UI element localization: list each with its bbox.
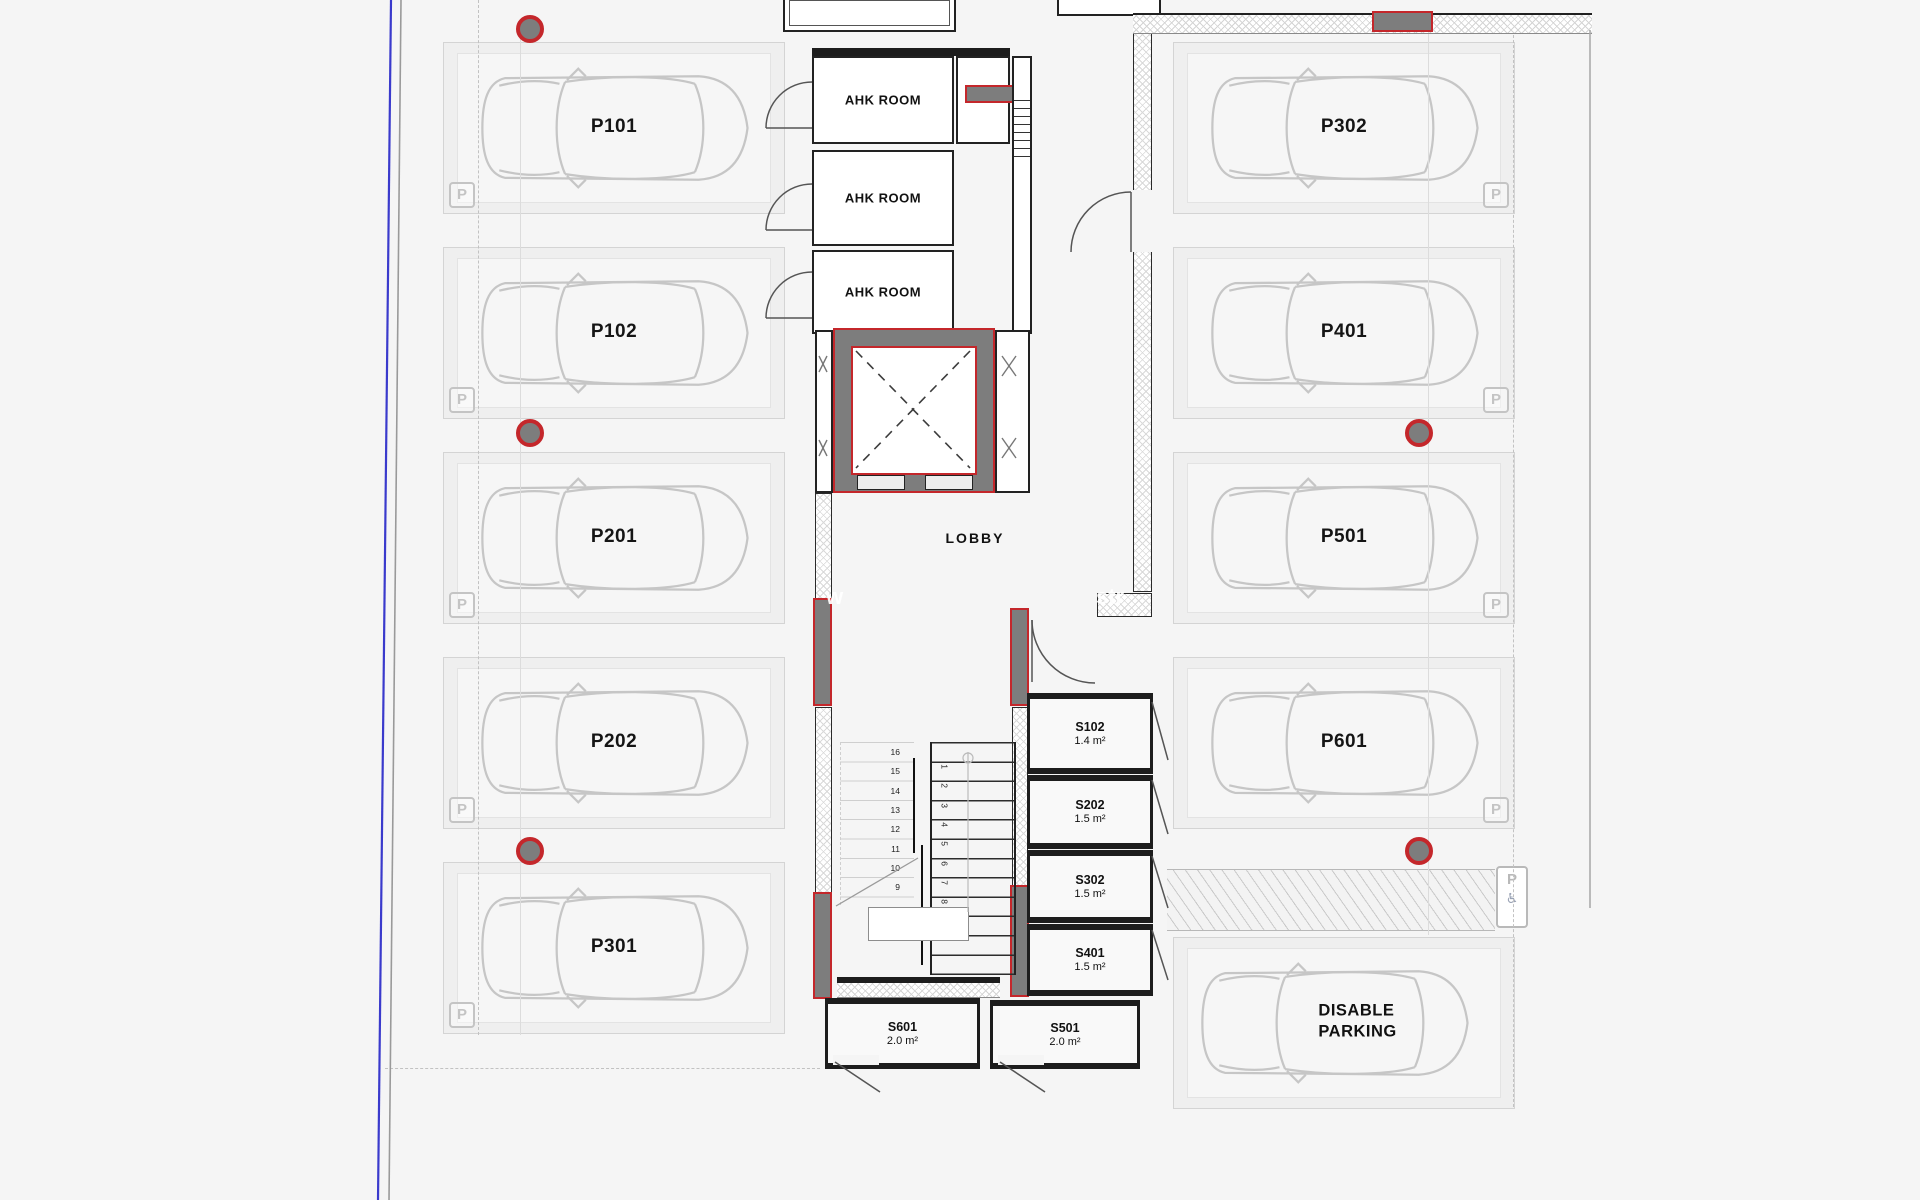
structural-column: [516, 837, 544, 865]
parking-sign-icon: P: [449, 797, 475, 823]
storage-area: 1.5 m²: [1030, 813, 1150, 825]
watermark-fragment-right: str: [1096, 584, 1124, 610]
stair-number: 9: [874, 882, 900, 901]
stall-label: P302: [1174, 116, 1514, 138]
stall-label: P202: [444, 731, 784, 753]
stair-number: 12: [874, 824, 900, 843]
wall-pier-left-2: [813, 892, 832, 999]
storage-label: S302 1.5 m²: [1030, 872, 1150, 899]
parking-sign-icon: P: [1483, 797, 1509, 823]
watermark-fragment-left: w: [826, 584, 843, 610]
structural-column: [516, 419, 544, 447]
wall-hatched-left-2: [815, 707, 832, 894]
stall-label: P201: [444, 526, 784, 548]
storage-area: 1.5 m²: [1030, 961, 1150, 973]
parking-stall-p501: P P501: [1173, 452, 1515, 624]
structural-column: [1405, 419, 1433, 447]
parking-sign-icon: P: [449, 592, 475, 618]
parking-sign-icon: P: [449, 387, 475, 413]
storage-label: S601 2.0 m²: [828, 1019, 977, 1046]
stair-number: 1: [930, 760, 949, 774]
stair-numbers-left: 16 15 14 13 12 11 10 9: [874, 747, 900, 902]
ahk-room-label: AHK ROOM: [814, 285, 952, 300]
stall-label: P301: [444, 936, 784, 958]
stair-number: 5: [930, 837, 949, 851]
parking-sign-icon: P: [449, 1002, 475, 1028]
storage-area: 1.4 m²: [1030, 734, 1150, 746]
column-grid-dashed-left: [478, 0, 479, 1035]
storage-name: S501: [993, 1020, 1137, 1034]
disabled-parking-label: DISABLE PARKING: [1318, 1000, 1396, 1042]
ahk-room-3: AHK ROOM: [812, 250, 954, 334]
disabled-parking-line2: PARKING: [1318, 1022, 1396, 1040]
stair-number: 15: [874, 766, 900, 785]
storage-room-s302: S302 1.5 m²: [1027, 850, 1153, 923]
stair-number: 11: [874, 844, 900, 863]
disabled-parking-sign-icon: P ♿: [1496, 866, 1528, 928]
lobby-label: LOBBY: [905, 530, 1045, 546]
ahk-room-1: AHK ROOM: [812, 56, 954, 144]
storage-label: S202 1.5 m²: [1030, 798, 1150, 825]
door-opening-gap: [833, 1055, 879, 1065]
wall-pier-top: [1372, 11, 1433, 32]
ladder-rungs: [1014, 100, 1030, 162]
parking-stall-p202: P P202: [443, 657, 785, 829]
stair-landing: [868, 907, 969, 941]
stair-number: 6: [930, 856, 949, 870]
aisle-dashed-line: [385, 1068, 820, 1069]
elevator-door-right: [925, 475, 973, 490]
stair-number: 4: [930, 818, 949, 832]
parking-stall-p101: P P101: [443, 42, 785, 214]
parking-stall-p401: P P401: [1173, 247, 1515, 419]
stair-number: 16: [874, 747, 900, 766]
storage-label: S401 1.5 m²: [1030, 946, 1150, 973]
storage-area: 2.0 m²: [828, 1034, 977, 1046]
storage-name: S601: [828, 1019, 977, 1033]
door-opening-gap: [998, 1055, 1044, 1065]
structural-column: [1405, 837, 1433, 865]
ahk-room-2: AHK ROOM: [812, 150, 954, 246]
ahk-room-label: AHK ROOM: [814, 191, 952, 206]
storage-area: 1.5 m²: [1030, 887, 1150, 899]
hatched-walkway: [1167, 869, 1495, 931]
stall-label: P101: [444, 116, 784, 138]
parking-sign-icon: P: [449, 182, 475, 208]
stair-numbers-right: 1 2 3 4 5 6 7 8: [933, 757, 947, 912]
storage-name: S401: [1030, 946, 1150, 960]
top-exterior-wall: [1133, 13, 1592, 34]
stair-number: 10: [874, 863, 900, 882]
storage-room-s401: S401 1.5 m²: [1027, 924, 1153, 996]
parking-sign-icon: P: [1483, 592, 1509, 618]
core-bottom-hatch: [837, 983, 1000, 998]
parking-stall-p201: P P201: [443, 452, 785, 624]
parking-stall-disabled: DISABLE PARKING: [1173, 937, 1515, 1109]
stall-label: P501: [1174, 526, 1514, 548]
parking-stall-p102: P P102: [443, 247, 785, 419]
stair-number: 8: [930, 895, 949, 909]
storage-room-s202: S202 1.5 m²: [1027, 775, 1153, 849]
disabled-parking-line1: DISABLE: [1318, 1001, 1394, 1019]
column-grid-dashed-right: [1513, 30, 1514, 1107]
stair-rail: [921, 845, 923, 965]
top-structure-box: [783, 0, 956, 32]
storage-label: S501 2.0 m²: [993, 1020, 1137, 1047]
column-grid-line-left: [520, 30, 521, 1035]
stall-label: P401: [1174, 321, 1514, 343]
storage-name: S302: [1030, 872, 1150, 886]
storage-area: 2.0 m²: [993, 1035, 1137, 1047]
floor-plan-canvas: P P101 P P102 P P201 P P202 P P301 P P30…: [0, 0, 1920, 1200]
ahk-top-wall: [812, 48, 1010, 56]
structural-column: [516, 15, 544, 43]
top-structure-inner: [789, 0, 950, 26]
building-wall-right: [1133, 13, 1152, 592]
door-opening-gap: [1129, 190, 1155, 252]
storage-room-s102: S102 1.4 m²: [1027, 693, 1153, 774]
stair-number: 7: [930, 876, 949, 890]
stair-number: 3: [930, 798, 949, 812]
storage-label: S102 1.4 m²: [1030, 719, 1150, 746]
stair-number: 2: [930, 779, 949, 793]
parking-stall-p301: P P301: [443, 862, 785, 1034]
column-grid-line-right: [1428, 30, 1429, 935]
elevator-duct-left: [815, 330, 833, 493]
parking-sign-icon: P: [1483, 387, 1509, 413]
parking-stall-p601: P P601: [1173, 657, 1515, 829]
stair-number: 14: [874, 786, 900, 805]
elevator-door-left: [857, 475, 905, 490]
storage-name: S102: [1030, 719, 1150, 733]
wall-pier-right-1: [1010, 608, 1029, 706]
parking-sign-letter: P: [1498, 870, 1526, 890]
stair-number: 13: [874, 805, 900, 824]
elevator-cab: [851, 346, 977, 475]
stair-rail: [913, 758, 915, 853]
wall-pier-left-1: [813, 598, 832, 706]
shaft-wall: [1012, 56, 1032, 334]
stall-label: P601: [1174, 731, 1514, 753]
stall-label: P102: [444, 321, 784, 343]
parking-sign-icon: P: [1483, 182, 1509, 208]
ahk-room-label: AHK ROOM: [814, 93, 952, 108]
storage-name: S202: [1030, 798, 1150, 812]
parking-stall-p302: P P302: [1173, 42, 1515, 214]
elevator-duct-right: [995, 330, 1030, 493]
wheelchair-icon: ♿: [1498, 890, 1526, 908]
